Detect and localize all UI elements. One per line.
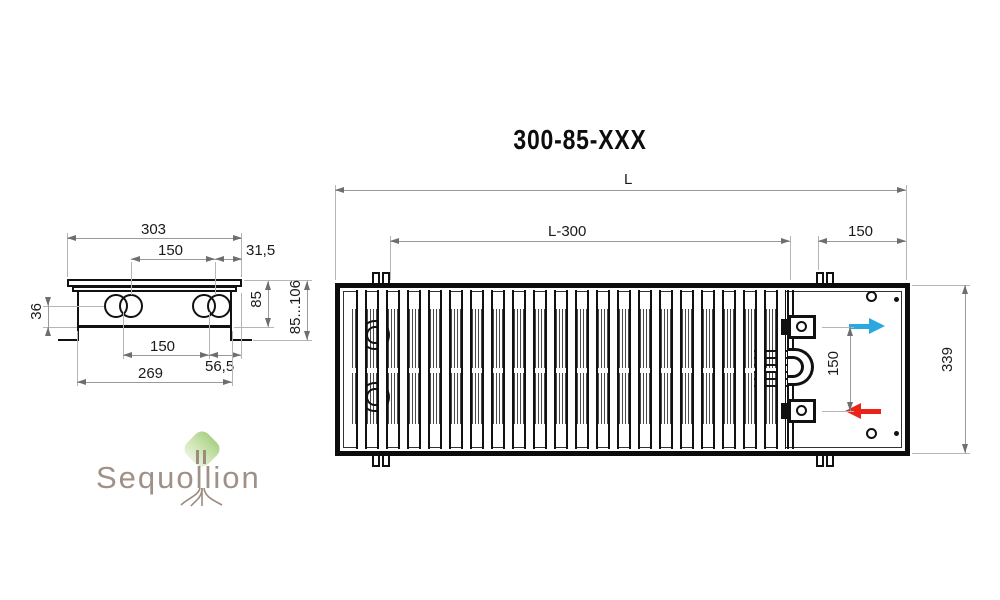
dim-arrow <box>304 281 310 290</box>
dim-arrow <box>233 235 242 241</box>
dim-line-L <box>335 190 906 191</box>
side-lid-trim <box>72 286 237 292</box>
dim-arrow <box>781 238 790 244</box>
dim-label-150-connections: 150 <box>825 351 842 376</box>
side-foot-left-flange <box>58 339 79 341</box>
dim-label-L: L <box>624 171 632 188</box>
dim-arrow <box>123 352 132 358</box>
dim-arrow <box>335 187 344 193</box>
dim-arrow <box>233 256 242 262</box>
ext-line <box>234 327 274 328</box>
dim-line-L-300 <box>390 241 790 242</box>
dim-label-339: 339 <box>939 347 956 372</box>
ext-line <box>822 411 854 412</box>
technical-drawing-canvas: 300-85-XXX 303 150 <box>0 0 1000 600</box>
dim-arrow <box>206 256 215 262</box>
dim-line-303 <box>67 238 242 239</box>
dim-arrow <box>847 402 853 411</box>
dim-arrow <box>131 256 140 262</box>
dim-line-150-end <box>818 241 906 242</box>
side-body-left-wall <box>77 291 79 328</box>
ext-line <box>253 340 312 341</box>
dim-arrow <box>45 297 51 306</box>
ext-line <box>912 453 970 454</box>
supply-flow-arrow-icon <box>869 318 885 334</box>
dim-label-85: 85 <box>248 291 265 308</box>
screw-hole-bottom <box>866 428 877 439</box>
dim-label-85-106: 85...106 <box>287 280 304 334</box>
dim-arrow <box>67 235 76 241</box>
dim-arrow <box>77 379 86 385</box>
dim-arrow <box>962 285 968 294</box>
ext-line <box>215 262 216 295</box>
dim-arrow <box>818 238 827 244</box>
dim-label-L-300: L-300 <box>548 223 586 240</box>
screw-hole-top <box>866 291 877 302</box>
ext-line <box>241 293 242 359</box>
dim-label-56-5: 56,5 <box>205 358 234 375</box>
dim-label-150-bottom: 150 <box>150 338 175 355</box>
dim-line-150-bottom <box>123 355 209 356</box>
ext-line <box>790 236 791 280</box>
dim-arrow <box>223 379 232 385</box>
dim-label-150-top: 150 <box>158 242 183 259</box>
dim-arrow <box>847 327 853 336</box>
ext-line <box>131 262 132 295</box>
dim-label-150-end: 150 <box>848 223 873 240</box>
dim-arrow <box>215 256 224 262</box>
dim-line-269 <box>77 382 232 383</box>
ext-line <box>43 306 104 307</box>
corner-dot-bottom <box>894 431 899 436</box>
dim-label-36: 36 <box>28 303 45 320</box>
pipe-fitting-top-circle <box>796 321 807 332</box>
dim-arrow <box>897 238 906 244</box>
dim-line-339 <box>965 285 966 453</box>
dim-arrow <box>45 327 51 336</box>
ext-line <box>77 331 78 386</box>
dim-arrow <box>265 318 271 327</box>
ext-line <box>232 331 233 386</box>
dim-arrow <box>265 281 271 290</box>
pipe-fitting-bottom-circle <box>796 405 807 416</box>
grille-slats <box>346 290 786 449</box>
dim-label-269: 269 <box>138 365 163 382</box>
ext-line <box>335 185 336 280</box>
side-pipe-circle-4 <box>207 294 231 318</box>
drawing-title: 300-85-XXX <box>432 124 727 156</box>
logo-tree-roots-icon <box>178 488 226 508</box>
corner-dot-top <box>894 297 899 302</box>
ext-line <box>906 185 907 280</box>
dim-line-150-connections <box>850 327 851 411</box>
dim-arrow <box>304 331 310 340</box>
dim-arrow <box>962 444 968 453</box>
dim-arrow <box>897 187 906 193</box>
fitting-clamp-top <box>781 319 788 335</box>
dim-label-303: 303 <box>141 221 166 238</box>
fitting-clamp-bottom <box>781 403 788 419</box>
dim-label-31-5: 31,5 <box>246 242 275 259</box>
dim-line-150-top <box>131 259 215 260</box>
return-flow-arrow-shaft <box>861 409 881 414</box>
dim-arrow <box>390 238 399 244</box>
